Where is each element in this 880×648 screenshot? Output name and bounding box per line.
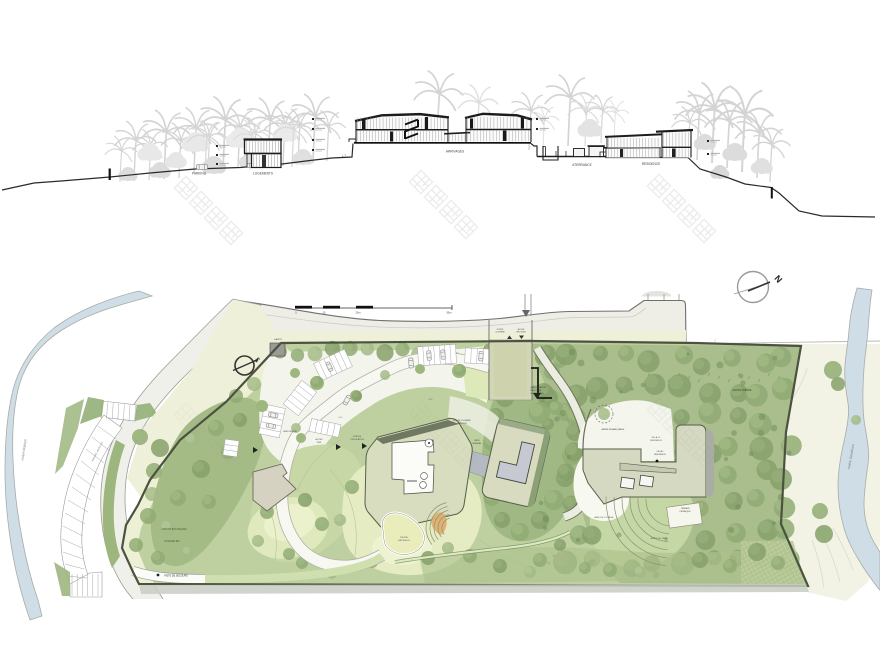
svg-text:QUAI LIVRAISON: QUAI LIVRAISON bbox=[530, 386, 547, 389]
svg-text:PATIO: PATIO bbox=[474, 439, 480, 442]
svg-text:AIRE DE L'ORAGE: AIRE DE L'ORAGE bbox=[595, 516, 614, 519]
svg-text:GARITE: GARITE bbox=[274, 338, 283, 341]
svg-text:LOGEMENTS: LOGEMENTS bbox=[253, 172, 273, 176]
svg-text:AIRES DE JEUX: AIRES DE JEUX bbox=[651, 537, 668, 540]
svg-text:PARKING: PARKING bbox=[192, 172, 207, 176]
svg-text:ARRIVAGES: ARRIVAGES bbox=[446, 150, 464, 154]
svg-text:+2.10: +2.10 bbox=[338, 417, 343, 419]
svg-text:PETANQUE: PETANQUE bbox=[680, 510, 692, 513]
svg-text:PMR: PMR bbox=[317, 442, 322, 444]
svg-text:POTAGER BIO: POTAGER BIO bbox=[164, 540, 180, 543]
svg-text:ARBRE REMARQUABLE: ARBRE REMARQUABLE bbox=[602, 428, 625, 431]
svg-text:PISCINE: PISCINE bbox=[400, 537, 409, 539]
svg-text:RESIDENCE: RESIDENCE bbox=[654, 454, 666, 456]
svg-text:RESIDENCE: RESIDENCE bbox=[642, 162, 661, 166]
svg-text:MASSIF ARBORE: MASSIF ARBORE bbox=[733, 389, 752, 392]
svg-text:BASCULE: BASCULE bbox=[457, 422, 467, 425]
svg-text:PISTE DE SECOURS: PISTE DE SECOURS bbox=[164, 575, 188, 578]
svg-text:ATERRANCE: ATERRANCE bbox=[572, 163, 591, 167]
svg-text:NATURELLE: NATURELLE bbox=[398, 539, 410, 542]
svg-text:20m: 20m bbox=[355, 311, 360, 315]
svg-text:CIRCULATION: CIRCULATION bbox=[350, 438, 364, 441]
svg-text:SENS UNIQUE: SENS UNIQUE bbox=[283, 431, 297, 433]
svg-text:RESIDENCE: RESIDENCE bbox=[650, 440, 662, 442]
svg-text:VILLA 1: VILLA 1 bbox=[656, 450, 664, 453]
svg-text:SECOURS: SECOURS bbox=[516, 332, 526, 334]
svg-text:TERRAIN: TERRAIN bbox=[681, 507, 690, 510]
svg-text:JARDINS BOTANIQUES: JARDINS BOTANIQUES bbox=[161, 528, 187, 531]
svg-text:L.T: L.T bbox=[342, 154, 346, 158]
svg-text:ACCES: ACCES bbox=[316, 438, 324, 441]
svg-text:PORTE COCHERE: PORTE COCHERE bbox=[453, 420, 471, 422]
svg-text:+1.20: +1.20 bbox=[428, 399, 433, 401]
svg-text:50m: 50m bbox=[446, 311, 451, 315]
svg-text:COCHERE: COCHERE bbox=[495, 332, 505, 334]
svg-text:VEHICULES: VEHICULES bbox=[530, 390, 542, 392]
svg-text:VILLA 1.1: VILLA 1.1 bbox=[652, 436, 662, 439]
svg-text:MINERAL: MINERAL bbox=[473, 442, 483, 445]
svg-text:VOIE DE: VOIE DE bbox=[353, 436, 362, 438]
